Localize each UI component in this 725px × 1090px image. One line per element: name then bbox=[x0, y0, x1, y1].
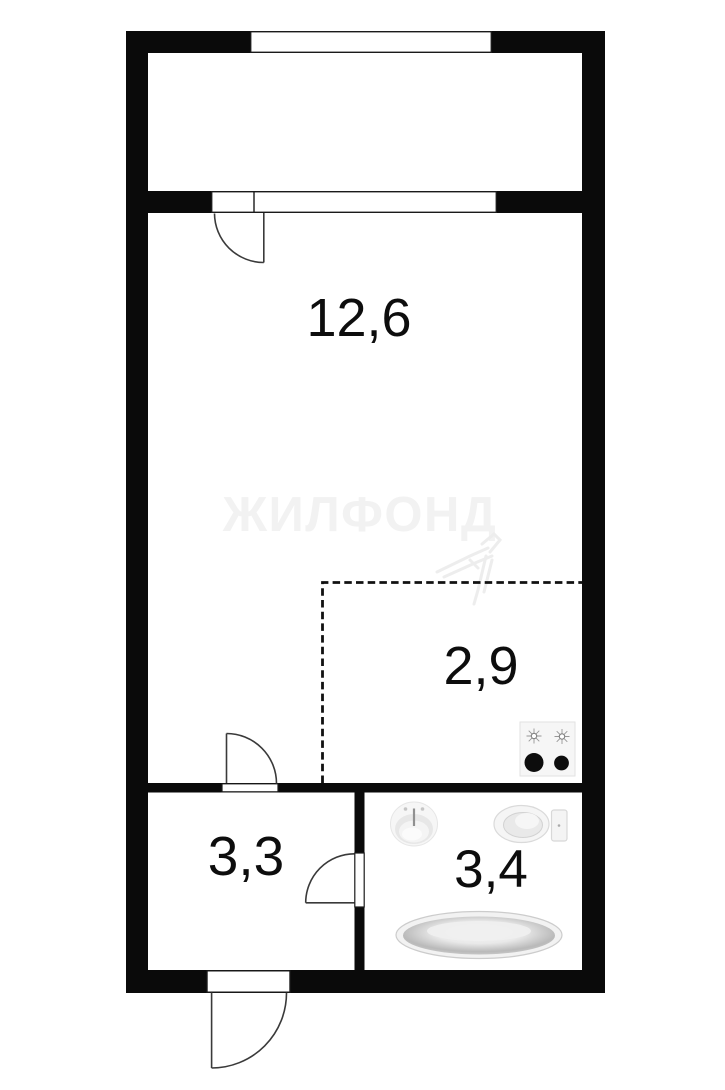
svg-text:ЖИЛФОНД: ЖИЛФОНД bbox=[222, 488, 498, 542]
svg-text:2,9: 2,9 bbox=[443, 636, 518, 696]
svg-text:3,4: 3,4 bbox=[454, 840, 528, 899]
svg-text:3,3: 3,3 bbox=[208, 825, 284, 887]
svg-text:12,6: 12,6 bbox=[306, 288, 411, 348]
